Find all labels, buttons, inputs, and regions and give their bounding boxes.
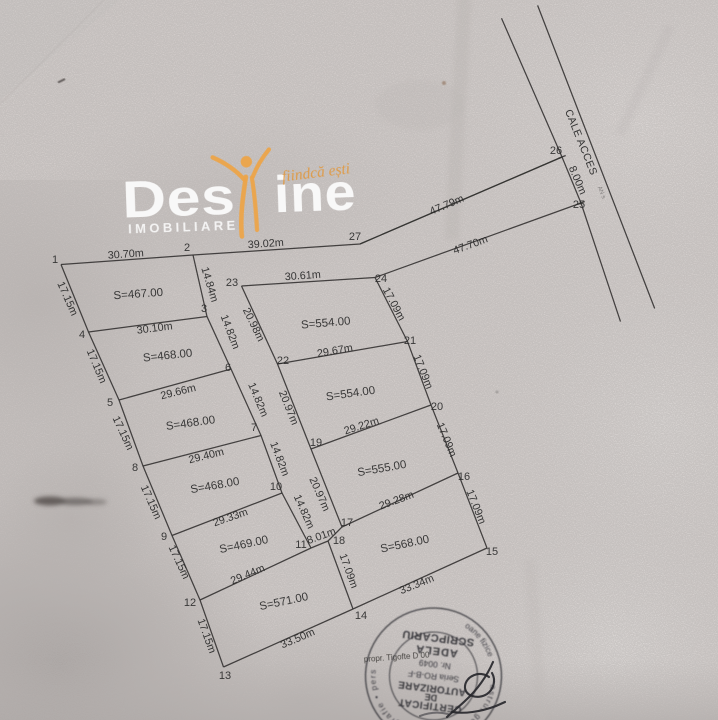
svg-text:10: 10 — [270, 481, 282, 493]
svg-text:8: 8 — [132, 462, 138, 474]
svg-text:5: 5 — [107, 397, 113, 409]
svg-text:3: 3 — [201, 303, 207, 315]
svg-text:9: 9 — [161, 531, 167, 543]
svg-text:6: 6 — [225, 362, 231, 374]
svg-text:22: 22 — [277, 355, 289, 367]
svg-text:4: 4 — [79, 329, 85, 341]
svg-text:14: 14 — [355, 610, 367, 622]
svg-text:16: 16 — [458, 471, 470, 483]
svg-text:2: 2 — [184, 242, 190, 254]
svg-text:11: 11 — [295, 539, 306, 551]
svg-text:24: 24 — [375, 273, 387, 285]
svg-text:17: 17 — [341, 517, 353, 529]
svg-text:30.61m: 30.61m — [284, 269, 321, 283]
svg-text:7: 7 — [251, 422, 257, 434]
svg-text:25: 25 — [573, 199, 585, 211]
svg-text:1: 1 — [52, 254, 58, 266]
svg-text:20: 20 — [431, 401, 443, 413]
svg-text:30.70m: 30.70m — [107, 247, 144, 261]
svg-text:21: 21 — [404, 335, 416, 347]
svg-text:13: 13 — [219, 670, 231, 682]
svg-text:23: 23 — [226, 277, 238, 289]
svg-text:12: 12 — [184, 597, 196, 609]
svg-text:26: 26 — [550, 145, 562, 157]
svg-text:27: 27 — [349, 231, 361, 243]
svg-text:15: 15 — [486, 546, 498, 558]
svg-text:18: 18 — [333, 535, 345, 547]
svg-text:19: 19 — [310, 437, 322, 449]
svg-text:39.02m: 39.02m — [247, 237, 284, 251]
